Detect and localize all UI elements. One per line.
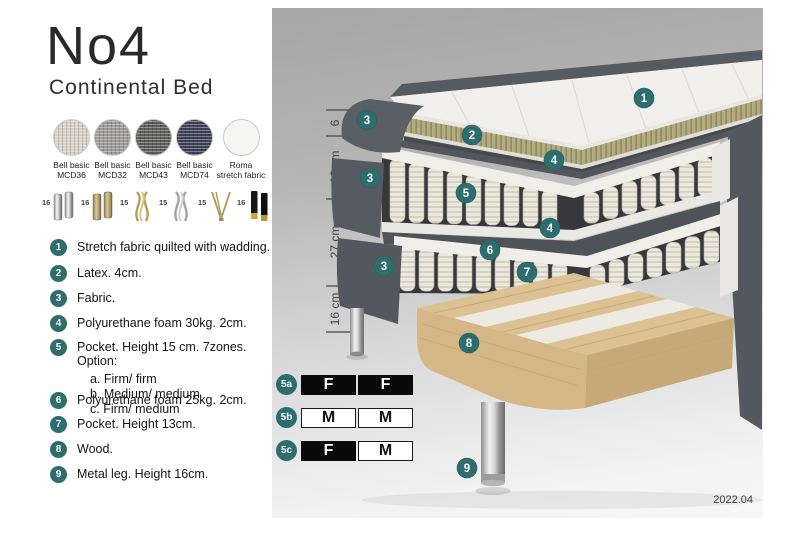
diagram-callout-5: 5	[456, 183, 476, 203]
fabric-swatch: Bell basicMCD43	[133, 119, 174, 180]
leg-height: 15	[198, 198, 206, 207]
fabric-code: MCD74	[176, 170, 212, 180]
diagram-callout-1: 1	[634, 88, 654, 108]
spec-number-badge: 5	[50, 339, 67, 356]
fabric-name: Roma	[217, 160, 266, 170]
spec-number-badge: 9	[50, 466, 67, 483]
leg-options: 16 16 15 15	[42, 186, 276, 226]
firmness-cell: F	[301, 375, 356, 395]
diagram-callout-3-bottom: 3	[374, 256, 394, 276]
fabric-swatch-circle	[223, 119, 260, 156]
spec-number-badge: 6	[50, 392, 67, 409]
gold-twisted-leg-icon	[129, 186, 157, 226]
firmness-row-5c: 5c F M	[276, 440, 413, 461]
diagram-callout-4-lower: 4	[540, 218, 560, 238]
firmness-row-5b: 5b M M	[276, 407, 413, 428]
spec-item-4: 4 Polyurethane foam 30kg. 2cm.	[50, 315, 247, 332]
fabric-name: Bell basic	[53, 160, 89, 170]
firmness-row-5a: 5a F F	[276, 374, 413, 395]
svg-text:3: 3	[367, 173, 373, 185]
leg-height: 16	[42, 198, 50, 207]
spec-option-a: a. Firm/ firm	[90, 372, 286, 387]
fabric-name: Bell basic	[135, 160, 171, 170]
diagram-callout-4-upper: 4	[544, 150, 564, 170]
spec-number-badge: 1	[50, 239, 67, 256]
svg-text:6: 6	[487, 245, 493, 257]
spec-number-badge: 8	[50, 441, 67, 458]
leg-option-gold-twisted: 15	[120, 186, 159, 226]
fabric-swatch: Bell basicMCD36	[51, 119, 92, 180]
spec-text: Pocket. Height 15 cm. 7zones. Option:	[77, 340, 247, 368]
diagram-callout-2: 2	[462, 125, 482, 145]
spec-item-9: 9 Metal leg. Height 16cm.	[50, 466, 208, 483]
fabric-code: MCD32	[94, 170, 130, 180]
firmness-badge: 5c	[276, 440, 297, 461]
fabric-name: Bell basic	[176, 160, 212, 170]
fabric-swatch-circle	[176, 119, 213, 156]
firmness-cell: M	[358, 408, 413, 428]
leg-height: 16	[81, 198, 89, 207]
spec-number-badge: 3	[50, 290, 67, 307]
dimension-label: 6	[328, 119, 342, 126]
svg-text:5: 5	[463, 188, 470, 200]
fabric-swatch-circle	[135, 119, 172, 156]
svg-text:8: 8	[466, 338, 473, 350]
svg-text:4: 4	[551, 155, 558, 167]
leg-option-silver-twisted: 15	[159, 186, 198, 226]
black-leg-icon	[246, 186, 274, 226]
firmness-cell: F	[358, 375, 413, 395]
diagram-callout-9: 9	[457, 458, 477, 478]
firmness-cell: M	[358, 441, 413, 461]
spec-text: Latex. 4cm.	[77, 265, 142, 281]
diagram-callout-6: 6	[480, 240, 500, 260]
fabric-swatch-circle	[94, 119, 131, 156]
product-diagram-panel: 6 19 cm 27 cm 16 cm	[272, 8, 763, 518]
firmness-badge: 5b	[276, 407, 297, 428]
spec-text: Polyurethane foam 25kg. 2cm.	[77, 392, 247, 408]
spec-item-8: 8 Wood.	[50, 441, 113, 458]
spec-number-badge: 2	[50, 265, 67, 282]
fabric-swatch: Bell basicMCD32	[92, 119, 133, 180]
spec-number-badge: 7	[50, 416, 67, 433]
svg-text:9: 9	[464, 463, 470, 475]
diagram-callout-7: 7	[517, 262, 537, 282]
spec-text: Metal leg. Height 16cm.	[77, 466, 208, 482]
svg-text:1: 1	[641, 93, 648, 105]
fabric-swatch: Bell basicMCD74	[174, 119, 215, 180]
leg-option-chrome: 16	[42, 186, 81, 226]
svg-text:4: 4	[547, 223, 554, 235]
page-title: No4	[46, 18, 151, 75]
spec-item-1: 1 Stretch fabric quilted with wadding.	[50, 239, 270, 256]
svg-text:3: 3	[381, 261, 387, 273]
fabric-code: stretch fabric	[217, 170, 266, 180]
spec-item-7: 7 Pocket. Height 13cm.	[50, 416, 196, 433]
version-stamp: 2022.04	[713, 494, 753, 506]
fabric-swatch-circle	[53, 119, 90, 156]
spec-text: Fabric.	[77, 290, 115, 306]
brass-cylinder-leg-icon	[90, 186, 118, 226]
fabric-options: Bell basicMCD36 Bell basicMCD32 Bell bas…	[51, 119, 267, 180]
spec-number-badge: 4	[50, 315, 67, 332]
svg-text:2: 2	[469, 130, 475, 142]
product-sheet: No4 Continental Bed Bell basicMCD36 Bell…	[0, 0, 800, 533]
firmness-cell: M	[301, 408, 356, 428]
fabric-swatch: Romastretch fabric	[215, 119, 267, 180]
diagram-callout-3-middle: 3	[360, 168, 380, 188]
spec-item-3: 3 Fabric.	[50, 290, 115, 307]
bed-3d-render: 1 2 3 4 3 5 4 6 7 3	[331, 50, 762, 495]
chrome-cylinder-leg-icon	[51, 186, 79, 226]
leg-option-brass: 16	[81, 186, 120, 226]
fabric-code: MCD43	[135, 170, 171, 180]
leg-height: 16	[237, 198, 245, 207]
leg-option-hairpin: 15	[198, 186, 237, 226]
fabric-name: Bell basic	[94, 160, 130, 170]
svg-text:3: 3	[364, 115, 370, 127]
fabric-code: MCD36	[53, 170, 89, 180]
spec-text: Wood.	[77, 441, 113, 457]
page-subtitle: Continental Bed	[49, 76, 213, 100]
leg-height: 15	[159, 198, 167, 207]
diagram-callout-3-top: 3	[357, 110, 377, 130]
spec-item-2: 2 Latex. 4cm.	[50, 265, 142, 282]
spec-text: Pocket. Height 13cm.	[77, 416, 196, 432]
leg-height: 15	[120, 198, 128, 207]
hairpin-leg-icon	[207, 186, 235, 226]
silver-twisted-leg-icon	[168, 186, 196, 226]
firmness-badge: 5a	[276, 374, 297, 395]
spec-text: Polyurethane foam 30kg. 2cm.	[77, 315, 247, 331]
svg-text:7: 7	[524, 267, 530, 279]
spec-text: Stretch fabric quilted with wadding.	[77, 239, 270, 255]
spec-item-6: 6 Polyurethane foam 25kg. 2cm.	[50, 392, 247, 409]
firmness-cell: F	[301, 441, 356, 461]
diagram-callout-8: 8	[459, 333, 479, 353]
leg-option-black-brass: 16	[237, 186, 276, 226]
